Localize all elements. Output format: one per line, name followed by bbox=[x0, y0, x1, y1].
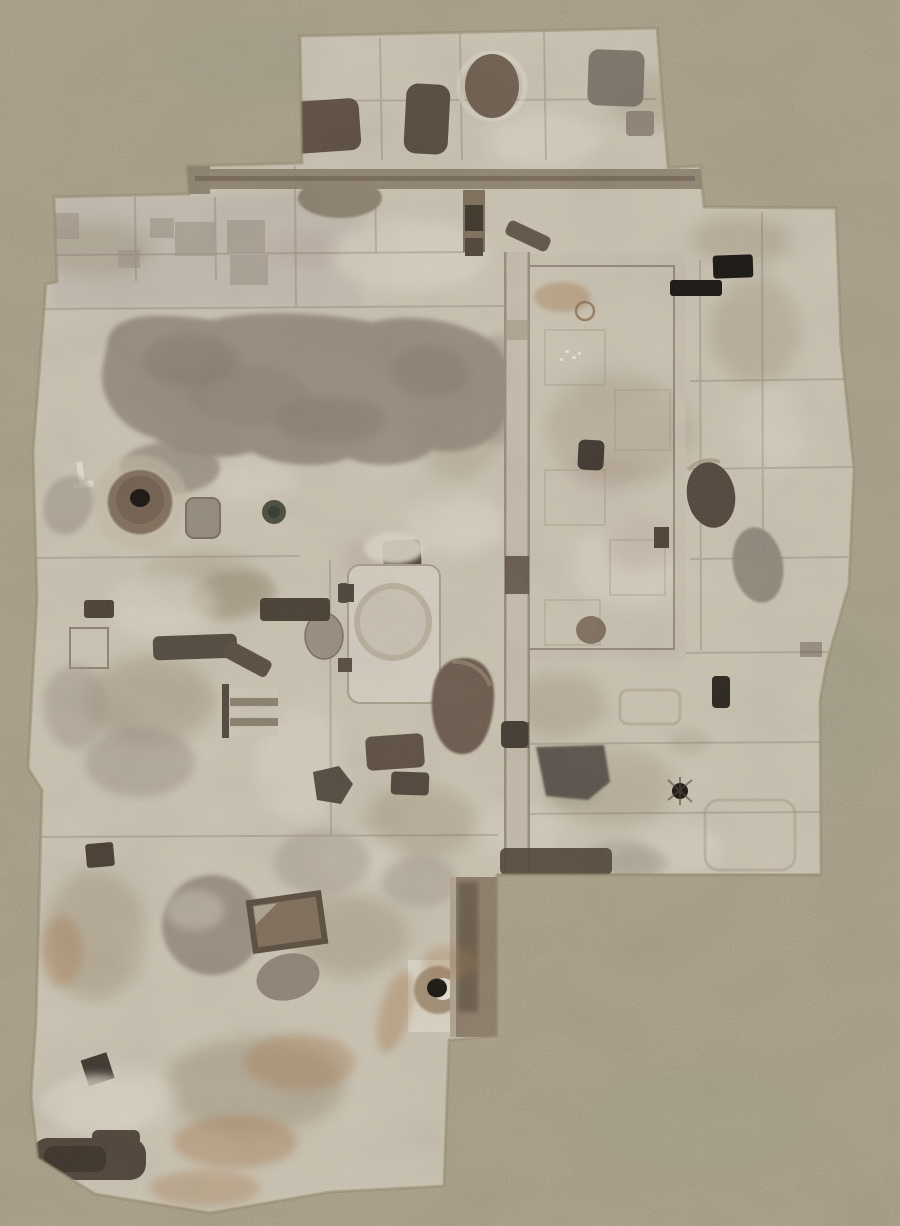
screenshot-root: Top-down drone orthophoto of an archaeol… bbox=[0, 0, 900, 1226]
site-orthophoto: Top-down drone orthophoto of an archaeol… bbox=[0, 0, 900, 1226]
